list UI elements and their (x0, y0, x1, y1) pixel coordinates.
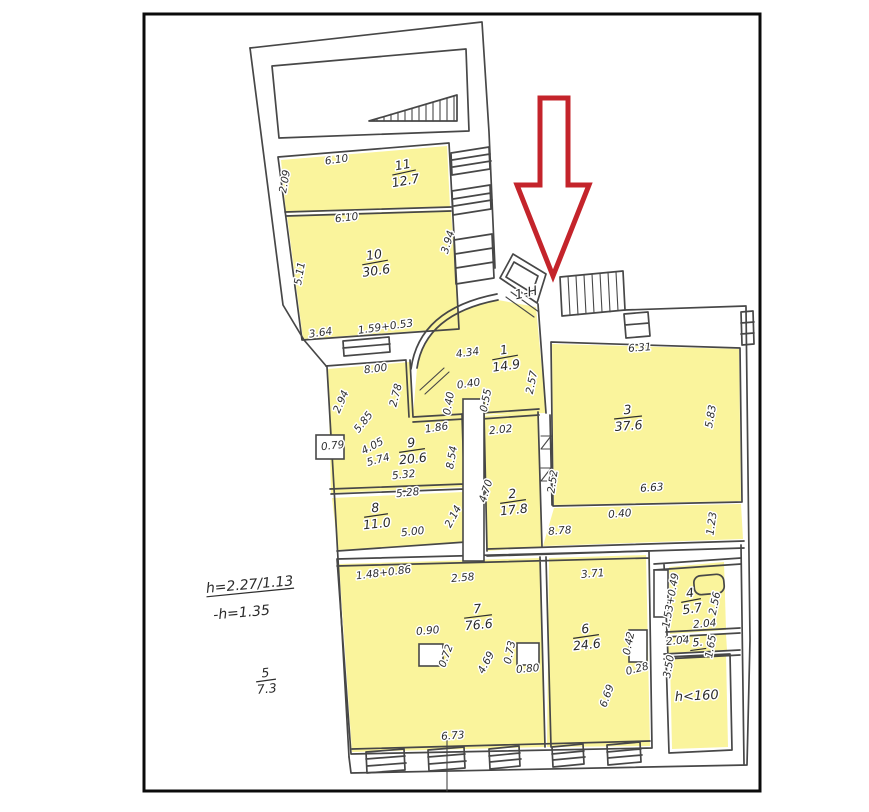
low-height-label: h<160 (674, 688, 719, 705)
dimension-label: 6.73 (441, 729, 465, 743)
dimension-label: 2.02 (488, 423, 513, 437)
room-5-area-note-number: 5 (261, 665, 270, 681)
dimension-label: 2.58 (451, 571, 476, 585)
room-5-number-text: 5. (692, 636, 703, 650)
room-3-label-area: 37.6 (614, 417, 643, 434)
room-10-label-number: 10 (365, 246, 383, 263)
dimension-label: 0.40 (608, 507, 632, 521)
dimension-label: 6.63 (640, 481, 664, 495)
dimension-label: 0.90 (416, 624, 441, 638)
room-3-label-number: 3 (623, 402, 632, 418)
room-8-label-number: 8 (370, 500, 380, 516)
low-height-label-text: h<160 (674, 688, 719, 705)
room-8-label-area: 11.0 (362, 515, 391, 533)
dimension-label: 5.28 (395, 486, 420, 500)
dimension-label: 0.80 (516, 662, 541, 676)
dimension-label: 6.31 (628, 341, 652, 355)
room-2-label-number: 2 (507, 486, 517, 502)
room-9-label-number: 9 (406, 435, 416, 451)
dimension-label: 5.00 (400, 525, 425, 539)
room-11-label-number: 11 (394, 156, 412, 174)
room-2-label-area: 17.8 (499, 501, 528, 519)
room-6-label-area: 24.6 (572, 636, 601, 654)
floor-plan-scan: 6.102.096.105.113.943.641.59+0.538.002.9… (0, 0, 869, 812)
dimension-label: 8.78 (548, 524, 572, 538)
dimension-label: 2.04 (666, 634, 690, 648)
dimension-label: 0.79 (320, 439, 345, 453)
room-6-label-number: 6 (580, 621, 590, 637)
floor-plan-image: 6.102.096.105.113.943.641.59+0.538.002.9… (0, 0, 869, 812)
room-4-label-area: 5.7 (681, 600, 703, 618)
room-7-label-number: 7 (473, 601, 482, 617)
shaft-central (463, 399, 484, 561)
dimension-label: 5.32 (391, 468, 416, 482)
dimension-label: 3.71 (581, 567, 605, 581)
dimension-label: 2.04 (693, 617, 717, 631)
room-9-label-area: 20.6 (398, 450, 427, 468)
room-5-area-note-area: 7.3 (256, 680, 277, 697)
room-7-label-area: 76.6 (464, 616, 493, 633)
